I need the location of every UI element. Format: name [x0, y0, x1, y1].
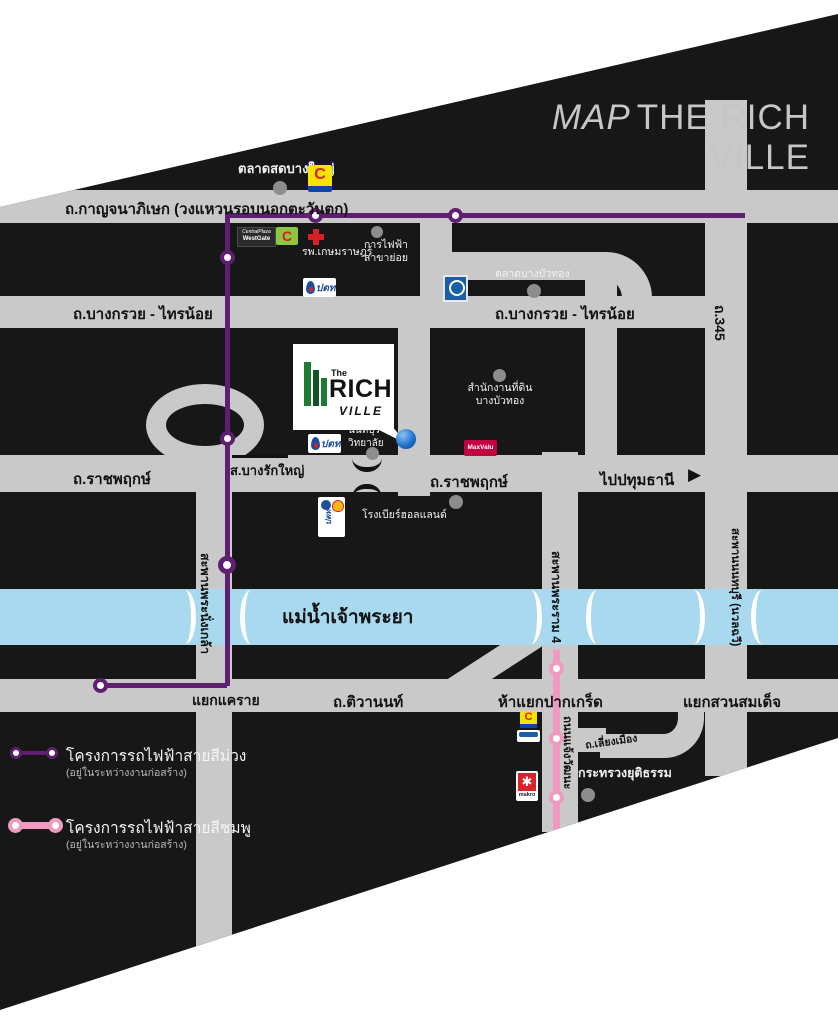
road-label-bangkruai-right: ถ.บางกรวย - ไทรน้อย	[495, 302, 635, 326]
place-land-office-line1: สำนักงานที่ดิน	[468, 382, 533, 394]
junction-label-khaerai: แยกแคราย	[192, 690, 260, 712]
richville-building-icon	[304, 362, 311, 406]
poi-dot	[273, 181, 287, 195]
map-background: แม่น้ำเจ้าพระยา ถ.กาญจนาภิเษก (วงแหวนรอบ…	[0, 0, 838, 1024]
purple-station	[448, 208, 463, 223]
station-overline	[232, 455, 288, 458]
chao-phraya-river	[0, 589, 838, 645]
bridge-mark	[240, 590, 256, 644]
bridge-label-rama4: สะพานพระราม 4	[546, 551, 566, 643]
richville-ville: VILLE	[339, 404, 383, 418]
map-canvas: แม่น้ำเจ้าพระยา ถ.กาญจนาภิเษก (วงแหวนรอบ…	[0, 0, 838, 1024]
richville-building-icon	[313, 370, 319, 406]
legend-purple-note: (อยู่ในระหว่างงานก่อสร้าง)	[66, 764, 187, 781]
junction-label-suansomdet: แยกสวนสมเด็จ	[683, 690, 781, 714]
arrow-right-icon: ▶	[688, 465, 701, 485]
bigc-green-logo: C	[276, 227, 298, 245]
richville-rich: RICH	[329, 375, 392, 404]
bigc-c-glyph: C	[308, 165, 332, 185]
place-holland-beer: โรงเบียร์ฮอลแลนด์	[362, 509, 447, 522]
makro-star-icon: ✱	[518, 773, 536, 791]
map-title: MAPTHE RICH VILLE	[495, 98, 810, 178]
legend-pink-dot	[8, 818, 23, 833]
purple-station	[220, 431, 235, 446]
ptt-logo: ปตท	[303, 278, 336, 297]
road-label-chaengwatthana: ถนนแจ้งวัฒนะ	[558, 716, 576, 789]
place-ministry-justice: กระทรวงยุติธรรม	[578, 766, 672, 782]
ptt-flame-dot	[309, 287, 313, 292]
junction-label-pakkret: ห้าแยกปากเกร็ด	[498, 690, 603, 714]
purple-station	[220, 250, 235, 265]
ratchaphruek-interchange-ring	[146, 384, 264, 466]
richville-location-marker	[396, 429, 416, 449]
purple-line-vertical	[225, 213, 230, 686]
station-label-bangrakyai: ส.บางรักใหญ่	[230, 460, 304, 481]
ptt-wordmark: ปตท	[316, 281, 335, 296]
place-land-office: สำนักงานที่ดิน บางบัวทอง	[462, 382, 538, 408]
place-electricity-line1: การไฟฟ้า	[364, 239, 408, 251]
gas-station-logos: ปตท	[318, 497, 345, 537]
poi-dot	[449, 495, 463, 509]
bridge-label-phranangklao: สะพานพระนั่งเกล้า	[195, 553, 215, 654]
bigc-c-glyph: C	[276, 227, 298, 245]
legend-purple-dot	[10, 747, 22, 759]
poi-dot	[371, 226, 383, 238]
legend-purple-dot	[46, 747, 58, 759]
maxvalu-logo: MaxValu	[464, 440, 497, 456]
bridge-label-nonthaburi: สะพานนนทบุรี (นวลฉวี)	[726, 528, 744, 646]
place-electricity: การไฟฟ้า สาขาย่อย	[364, 239, 408, 265]
store-globe-icon	[449, 280, 465, 296]
richville-logo-box: The RICH VILLE	[295, 346, 392, 428]
road-label-bangkruai-left: ถ.บางกรวย - ไทรน้อย	[73, 302, 213, 326]
hospital-cross-icon	[308, 234, 324, 240]
bigc-banner	[520, 724, 537, 728]
makro-logo: ✱ makro	[516, 771, 538, 801]
place-land-office-line2: บางบัวทอง	[476, 395, 525, 407]
road-richville-access	[398, 296, 430, 496]
legend-pink-dot	[48, 818, 63, 833]
store-logo-blue	[443, 275, 468, 302]
centralplaza-westgate-logo: CentralPlaza WestGate	[237, 227, 276, 247]
maxvalu-wordmark: MaxValu	[464, 440, 497, 456]
poi-dot	[493, 369, 506, 382]
ptt-wordmark-vertical: ปตท	[322, 509, 335, 525]
poi-dot	[527, 284, 541, 298]
road-label-tiwanon: ถ.ติวานนท์	[333, 690, 403, 714]
road-label-345: ถ.345	[708, 305, 730, 341]
central-line2: WestGate	[238, 236, 275, 243]
place-college-line2: วิทยาลัย	[348, 438, 384, 449]
purple-station	[218, 556, 236, 574]
bridge-mark	[751, 590, 767, 644]
bigc-banner	[308, 186, 332, 192]
makro-wordmark: makro	[516, 792, 538, 798]
ptt-flame-dot	[314, 443, 318, 448]
place-talat-bangbuathong: ตลาดบางบัวทอง	[495, 268, 570, 281]
purple-line-khaerai	[100, 683, 227, 688]
legend-pink-note: (อยู่ในระหว่างงานก่อสร้าง)	[66, 836, 187, 853]
road-label-ratchaphruek-right: ถ.ราชพฤกษ์	[430, 470, 508, 494]
bigc-logo: C	[308, 165, 332, 192]
road-label-ratchaphruek-left: ถ.ราชพฤกษ์	[73, 467, 151, 491]
poi-dot	[581, 788, 595, 802]
direction-pathumthani: ไปปทุมธานี	[600, 468, 674, 492]
store-logo-small	[517, 730, 540, 742]
pink-station	[549, 790, 564, 805]
place-electricity-line2: สาขาย่อย	[364, 252, 408, 264]
richville-building-icon	[321, 378, 327, 406]
ptt-logo: ปตท	[308, 434, 341, 453]
central-line1: CentralPlaza	[238, 228, 275, 236]
road-label-kanchanaphisek: ถ.กาญจนาภิเษก (วงแหวนรอบนอกตะวันตก)	[65, 197, 348, 221]
poi-dot	[366, 447, 379, 460]
river-label: แม่น้ำเจ้าพระยา	[282, 602, 413, 632]
ptt-wordmark: ปตท	[321, 437, 340, 452]
purple-station-terminus	[93, 678, 108, 693]
bridge-mark	[586, 590, 602, 644]
map-title-name: THE RICH VILLE	[637, 98, 810, 177]
road-345-vertical	[705, 100, 747, 776]
bigc-c-glyph: C	[520, 711, 537, 724]
place-kasemrad-hospital: รพ.เกษมราษฎร์	[302, 246, 372, 259]
pink-station	[549, 661, 564, 676]
store-banner-icon	[519, 732, 538, 737]
bigc-logo-small: C	[520, 711, 537, 728]
map-title-prefix: MAP	[552, 98, 631, 137]
